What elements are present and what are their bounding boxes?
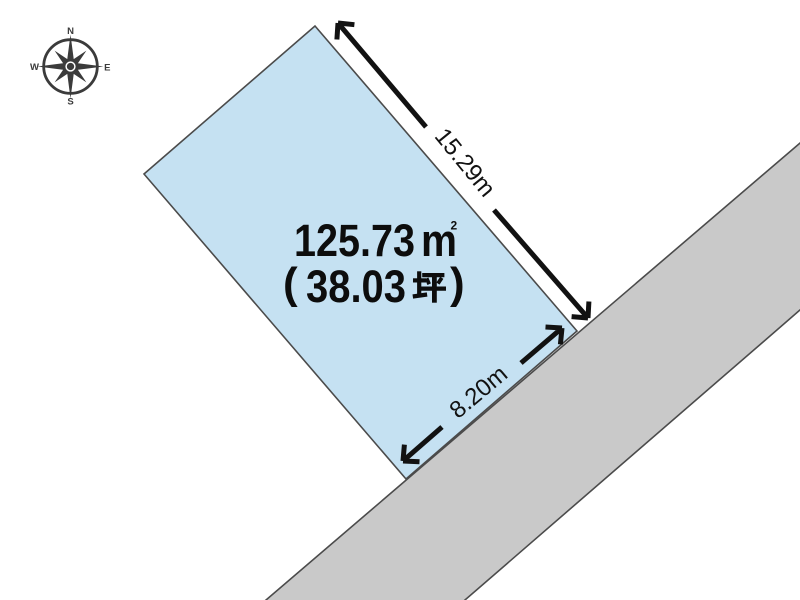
svg-text:N: N [67,26,74,37]
svg-text:E: E [104,62,110,73]
svg-text:125.73: 125.73 [294,215,415,266]
svg-text:(: ( [283,259,298,308]
svg-text:2: 2 [451,219,458,233]
svg-text:): ) [450,259,465,308]
svg-text:S: S [67,97,73,108]
svg-text:38.03: 38.03 [306,261,406,312]
svg-text:W: W [30,62,39,73]
